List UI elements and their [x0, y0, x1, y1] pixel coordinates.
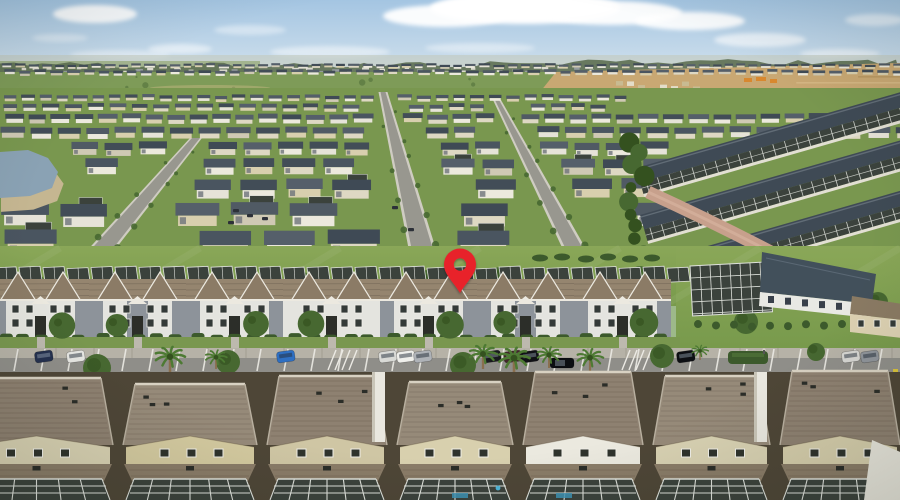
vignette — [0, 0, 900, 500]
aerial-photo — [0, 0, 900, 500]
aerial-photo-canvas — [0, 0, 900, 500]
